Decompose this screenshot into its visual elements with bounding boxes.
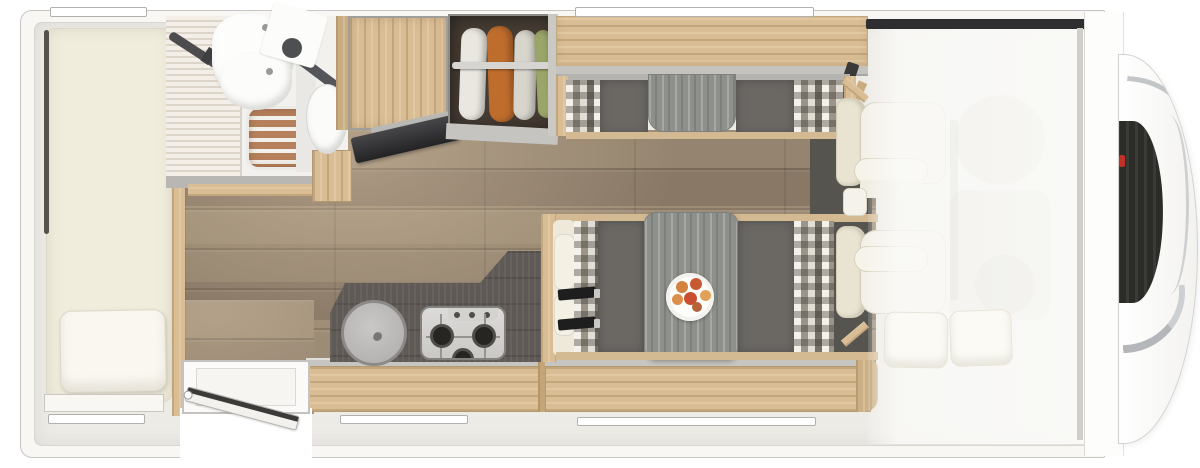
burner [452, 348, 474, 360]
window-slot [577, 417, 816, 426]
bench-cushion-right [794, 221, 834, 353]
burner [430, 324, 454, 348]
overhead-locker [556, 16, 868, 70]
headrest [554, 234, 575, 290]
brand-badge [1119, 155, 1125, 167]
cab-center-console [843, 188, 867, 216]
windshield-top-edge [866, 19, 1092, 29]
dashboard-line [1077, 28, 1083, 440]
top-bench-cushion-left [566, 80, 600, 134]
vehicle-front-nose [1118, 54, 1198, 444]
top-bench-front-edge [566, 132, 846, 139]
top-bench-seat-left [600, 80, 648, 134]
hob-knob [469, 312, 475, 318]
bench-seat-right [738, 221, 794, 353]
window-slot [575, 7, 814, 17]
wardrobe-cabinet [348, 16, 448, 130]
sideboard-cabinet [545, 366, 871, 412]
hob-knob [454, 312, 460, 318]
bench-seat-left [598, 221, 644, 353]
top-bench-seat-right [736, 80, 794, 134]
fruit [672, 294, 683, 305]
fruit [690, 278, 702, 290]
bench-wood-edge [556, 352, 878, 360]
bed-frame-gap [44, 30, 49, 234]
closet-rail [452, 62, 554, 69]
kitchen-lower-cabinet [306, 366, 542, 412]
seat-belt-buckle [594, 289, 600, 298]
burner [472, 324, 496, 348]
garment-white [458, 28, 487, 121]
drop-down-bed [868, 26, 1096, 444]
top-table-leaf [648, 74, 736, 132]
faucet-dot [266, 68, 273, 75]
bed-foot-step [44, 394, 164, 412]
window-slot [48, 414, 145, 424]
bathroom-door-panel [312, 150, 352, 202]
washbasin-bowl [220, 52, 292, 110]
sink-lid-knob [372, 331, 382, 341]
floorplan-canvas [0, 0, 1200, 468]
garment-light [513, 30, 537, 120]
bed-pillow [59, 309, 166, 393]
window-slot [340, 415, 468, 424]
kitchen-sink [341, 300, 407, 366]
cab-bed-pillow [884, 311, 949, 368]
fruit [700, 290, 711, 301]
chrome-trim [1119, 285, 1189, 353]
seat-belt-buckle [594, 319, 600, 328]
garment-orange [486, 26, 515, 123]
fruit [692, 302, 702, 312]
gas-hob [420, 306, 506, 360]
cab-bed-pillow [949, 309, 1013, 367]
fruit [676, 281, 688, 293]
vanity-drain [282, 38, 302, 58]
window-slot [50, 7, 147, 17]
